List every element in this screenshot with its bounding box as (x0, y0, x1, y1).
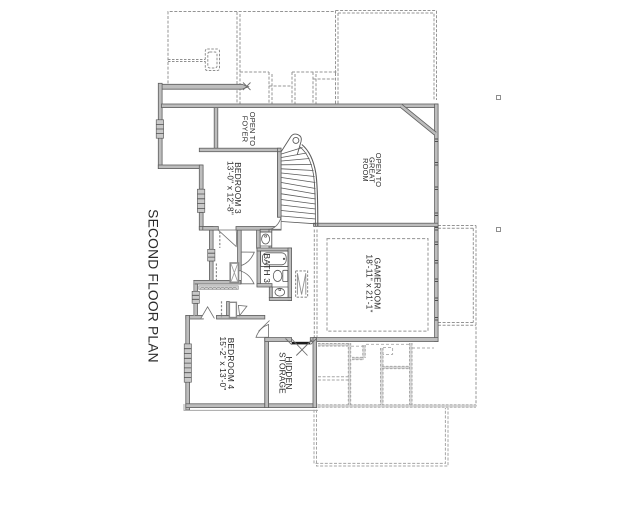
svg-text:18'-11" x 21'-1": 18'-11" x 21'-1" (365, 254, 375, 312)
svg-text:13'-0" x 12'-8": 13'-0" x 12'-8" (225, 161, 235, 215)
svg-text:15'-2" x 13'-0": 15'-2" x 13'-0" (218, 336, 228, 390)
svg-text:SECOND FLOOR PLAN: SECOND FLOOR PLAN (146, 209, 161, 363)
svg-text:BATH 3: BATH 3 (262, 253, 272, 283)
svg-text:STORAGE: STORAGE (278, 352, 288, 394)
svg-text:ROOM: ROOM (361, 158, 370, 182)
svg-text:FOYER: FOYER (241, 116, 250, 142)
